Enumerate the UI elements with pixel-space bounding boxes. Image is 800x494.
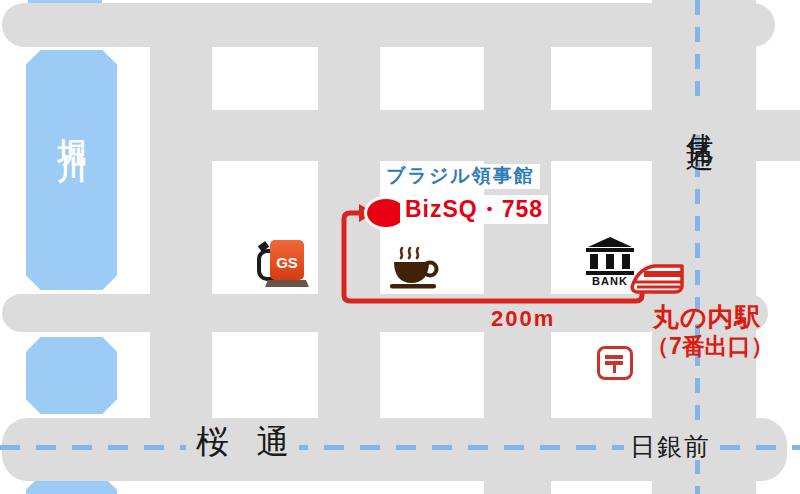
gas-pump-base xyxy=(265,280,309,287)
coffee-cup-icon xyxy=(385,245,441,289)
bank-icon: BANK xyxy=(584,237,636,289)
post-office-icon xyxy=(597,346,633,380)
consulate-label: ブラジル領事館 xyxy=(381,164,540,189)
access-map: 堀川 伏見通 桜 通 日銀前 GS xyxy=(0,0,800,494)
station-label: 丸の内駅 （7番出口） xyxy=(646,303,774,359)
gas-station-icon: GS xyxy=(257,239,309,289)
venue-label: BizSQ・758 xyxy=(400,195,548,224)
station-name: 丸の内駅 xyxy=(653,303,774,333)
gas-pump-body: GS xyxy=(270,240,304,280)
distance-label: 200m xyxy=(491,306,555,331)
bank-roof xyxy=(588,237,632,247)
station-exit: （7番出口） xyxy=(646,333,774,359)
bank-label: BANK xyxy=(584,275,636,287)
gas-station-label: GS xyxy=(270,254,304,271)
train-icon xyxy=(630,260,686,298)
